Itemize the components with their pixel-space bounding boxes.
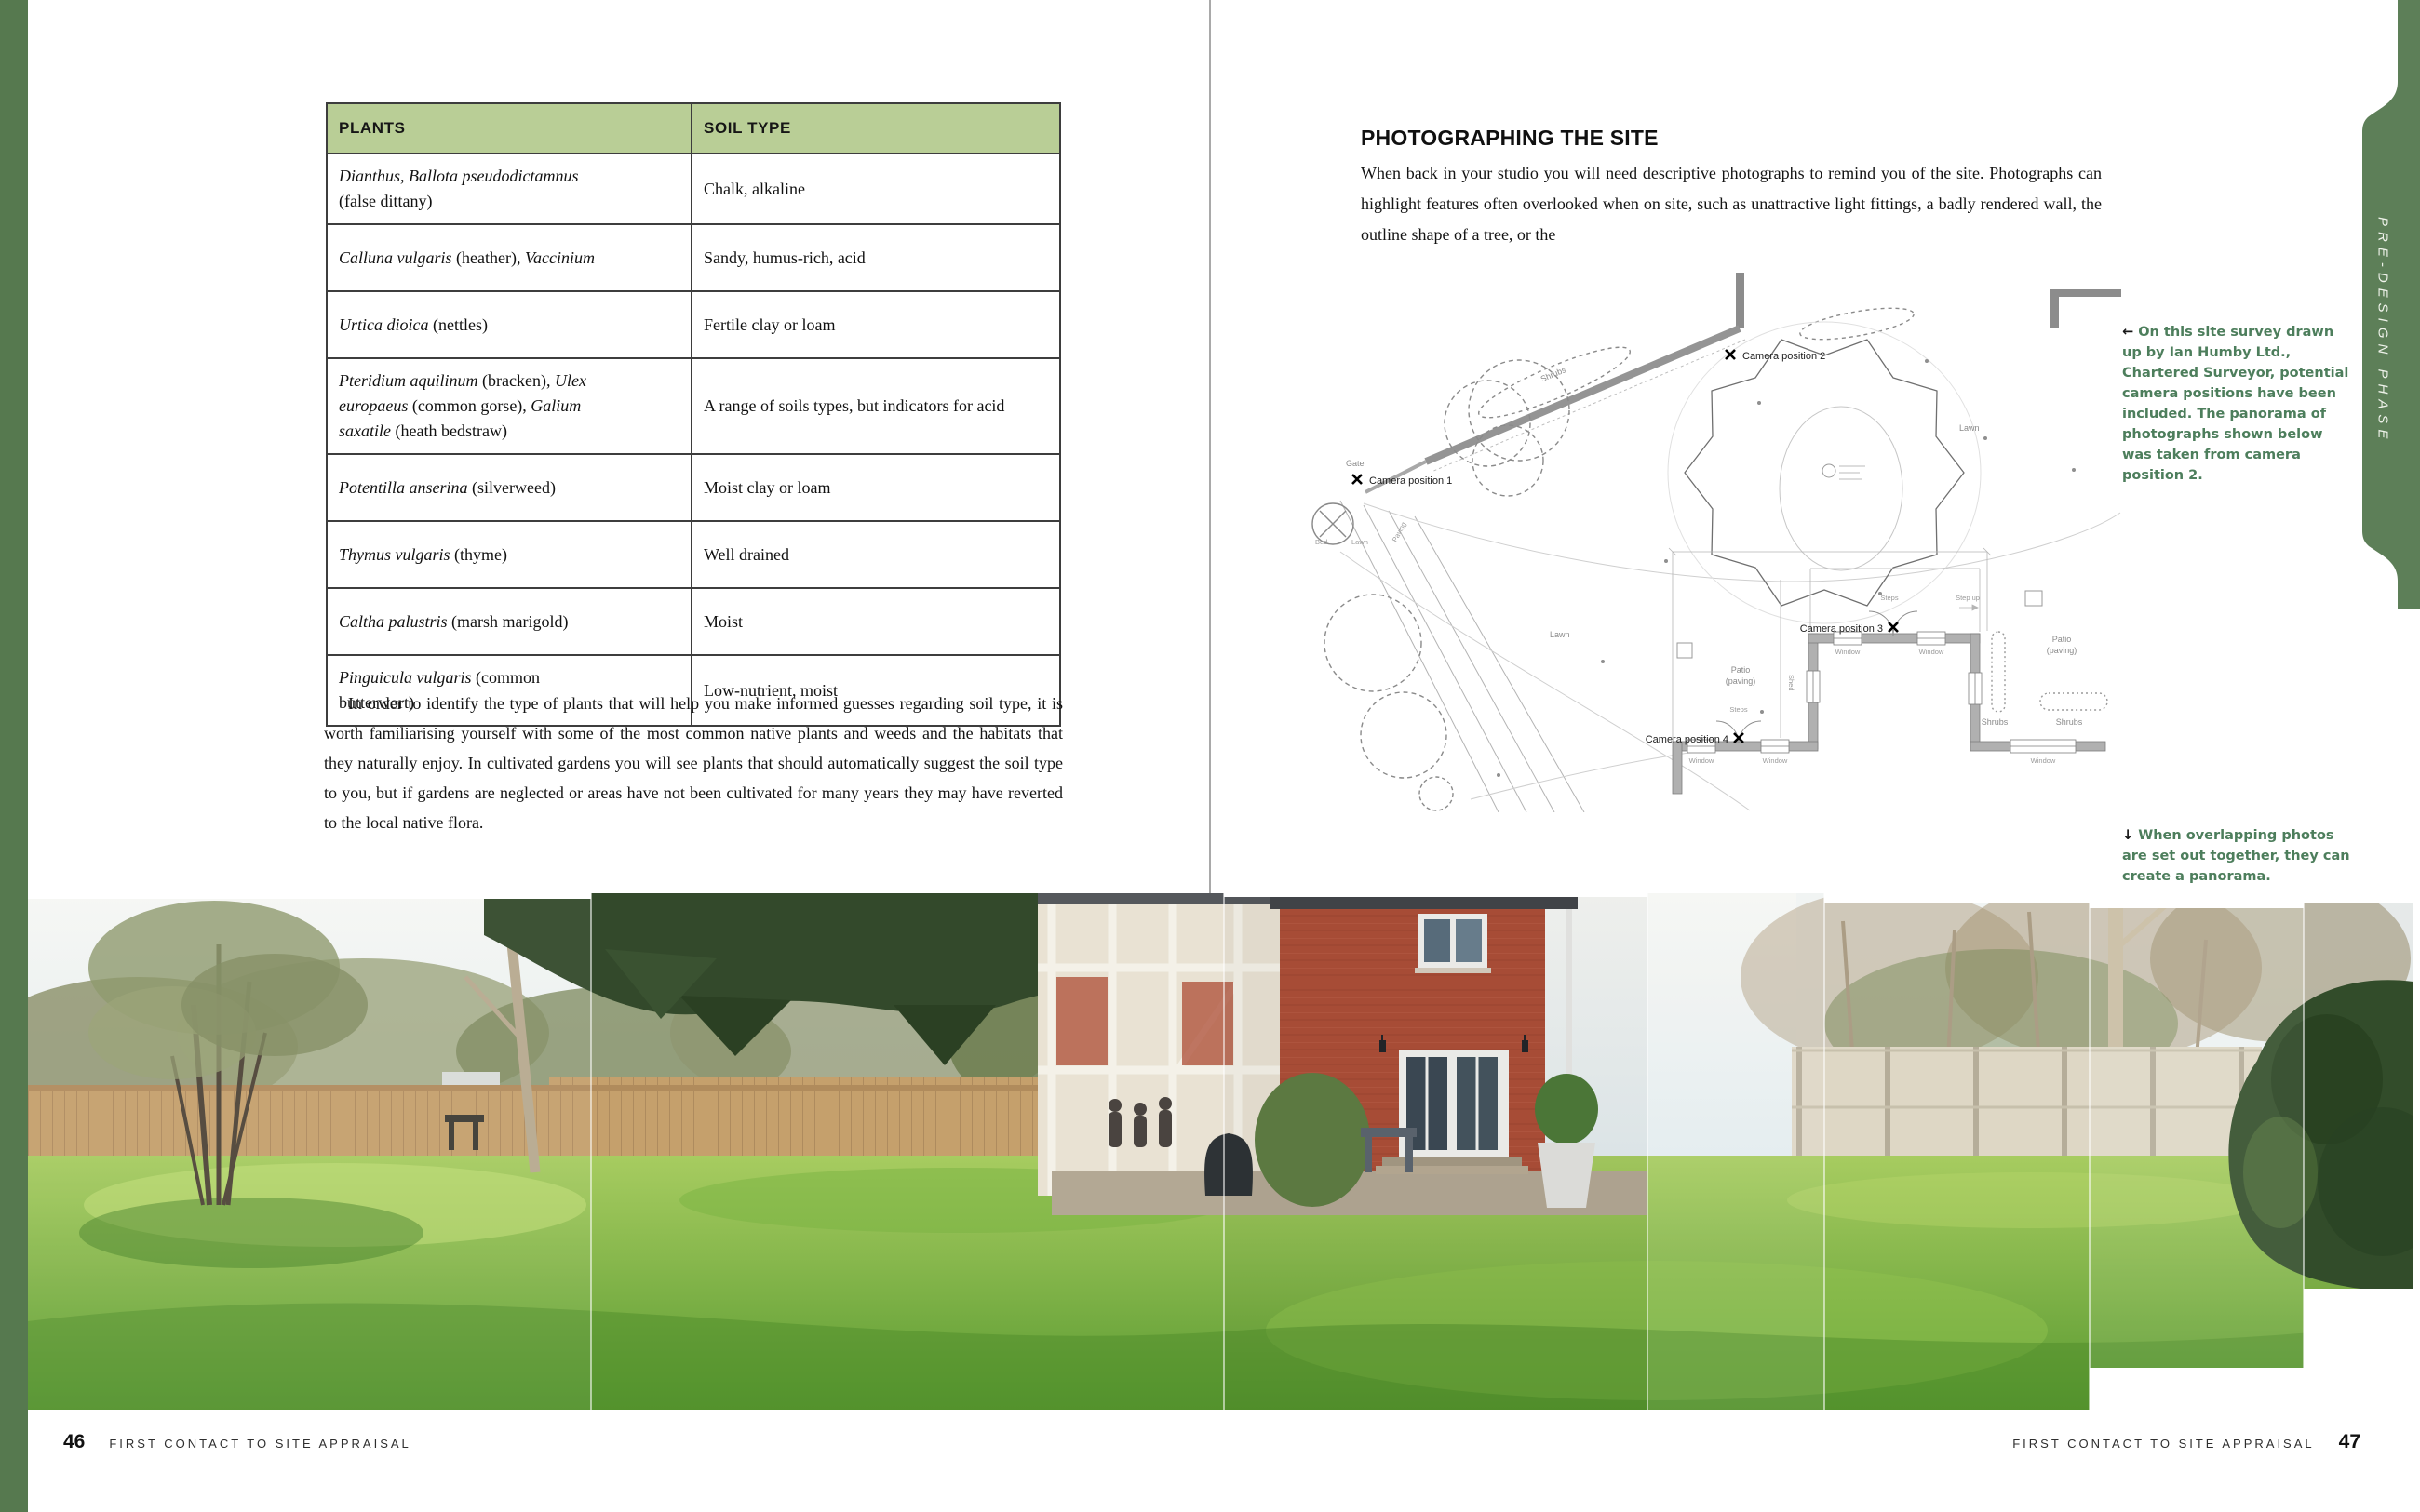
soil-cell: Chalk, alkaline [692,154,1060,224]
camera-position-3-label: Camera position 3 [1800,623,1883,635]
running-title-right: FIRST CONTACT TO SITE APPRAISAL [2012,1437,2314,1451]
window-label-1: Window [1689,756,1714,765]
book-spread: PLANTS SOIL TYPE Dianthus, Ballota pseud… [0,0,2420,1512]
steps-label-1: Steps [1880,594,1898,602]
soil-type-column-header: SOIL TYPE [692,103,1060,154]
soil-cell: Well drained [692,521,1060,588]
plant-cell: Potentilla anserina (silverweed) [327,454,692,521]
patio-left-label-1: Patio [1731,665,1751,675]
survey-contours [1340,503,2120,810]
section-heading: PHOTOGRAPHING THE SITE [1361,126,1659,151]
soil-cell: Sandy, humus-rich, acid [692,224,1060,291]
left-arrow-icon: ← [2122,325,2133,340]
survey-hedges [1992,632,2107,712]
plant-cell: Caltha palustris (marsh marigold) [327,588,692,655]
soil-cell: Fertile clay or loam [692,291,1060,358]
running-title-left: FIRST CONTACT TO SITE APPRAISAL [109,1437,410,1451]
page-number-left: 46 [63,1431,85,1453]
table-row: Pteridium aquilinum (bracken), Ulexeurop… [327,358,1060,454]
soil-cell: Moist clay or loam [692,454,1060,521]
panorama-caption-text: When overlapping photos are set out toge… [2122,828,2350,884]
down-arrow-icon: ↓ [2122,828,2133,843]
survey-house-walls [1673,634,2105,794]
window-label-2: Window [1763,756,1788,765]
patio-right-label-2: (paving) [2047,646,2077,655]
survey-walls [1365,273,2121,492]
camera-position-1-label: Camera position 1 [1369,475,1452,487]
lawn-label: Lawn [1959,423,1980,433]
patio-right-label-1: Patio [2052,635,2072,644]
window-label-5: Window [2031,756,2056,765]
left-page-paragraph: In order to identify the type of plants … [324,689,1063,837]
shrubs-label-2: Shrubs [2056,717,2083,727]
patio-left-label-2: (paving) [1726,676,1756,686]
site-survey-drawing: Camera position 1 Camera position 2 Came… [1275,273,2131,812]
table-row: Urtica dioica (nettles)Fertile clay or l… [327,291,1060,358]
people-silhouettes [1109,1097,1172,1147]
window-label-4: Window [1919,648,1944,656]
right-footer: FIRST CONTACT TO SITE APPRAISAL 47 [2012,1431,2360,1453]
panorama-caption: ↓ When overlapping photos are set out to… [2122,825,2357,887]
soil-table-body: Dianthus, Ballota pseudodictamnus(false … [327,154,1060,726]
plant-cell: Pteridium aquilinum (bracken), Ulexeurop… [327,358,692,454]
right-page-paragraph: When back in your studio you will need d… [1361,158,2102,249]
chapter-tab-label: PRE-DESIGN PHASE [2363,121,2402,540]
survey-caption-text: On this site survey drawn up by Ian Humb… [2122,325,2348,483]
camera-position-2-label: Camera position 2 [1742,351,1825,362]
plants-column-header: PLANTS [327,103,692,154]
garden-panorama-photo [28,893,2413,1410]
lawn-strip-label: Lawn [1351,538,1368,546]
table-row: Caltha palustris (marsh marigold)Moist [327,588,1060,655]
steps-label-2: Steps [1729,705,1747,714]
plant-cell: Thymus vulgaris (thyme) [327,521,692,588]
window-label-3: Window [1835,648,1861,656]
table-row: Dianthus, Ballota pseudodictamnus(false … [327,154,1060,224]
soil-cell: A range of soils types, but indicators f… [692,358,1060,454]
plants-soil-table: PLANTS SOIL TYPE Dianthus, Ballota pseud… [326,102,1061,727]
camera-position-4-label: Camera position 4 [1646,734,1728,745]
bed-label: Bed [1315,538,1327,546]
table-header-row: PLANTS SOIL TYPE [327,103,1060,154]
survey-spot-levels [1497,359,2076,777]
shed-label: Shed [1787,675,1795,691]
soil-cell: Moist [692,588,1060,655]
shrubs-label-3: Shrubs [1539,365,1568,384]
page-number-right: 47 [2339,1431,2360,1453]
left-footer: 46 FIRST CONTACT TO SITE APPRAISAL [63,1431,411,1453]
table-row: Thymus vulgaris (thyme)Well drained [327,521,1060,588]
gate-label: Gate [1346,459,1365,468]
survey-house-windows [1687,632,2076,753]
plant-cell: Dianthus, Ballota pseudodictamnus(false … [327,154,692,224]
step-up-label: Step up [1956,594,1980,602]
shrubs-label-1: Shrubs [1982,717,2009,727]
plant-cell: Urtica dioica (nettles) [327,291,692,358]
survey-paths [1340,501,1584,812]
plant-cell: Calluna vulgaris (heather), Vaccinium [327,224,692,291]
table-row: Calluna vulgaris (heather), VacciniumSan… [327,224,1060,291]
page-gutter [1209,0,1211,895]
lawn-label-2: Lawn [1550,630,1570,639]
table-row: Potentilla anserina (silverweed)Moist cl… [327,454,1060,521]
survey-caption: ← On this site survey drawn up by Ian Hu… [2122,322,2357,486]
left-edge-strip [0,0,28,1512]
